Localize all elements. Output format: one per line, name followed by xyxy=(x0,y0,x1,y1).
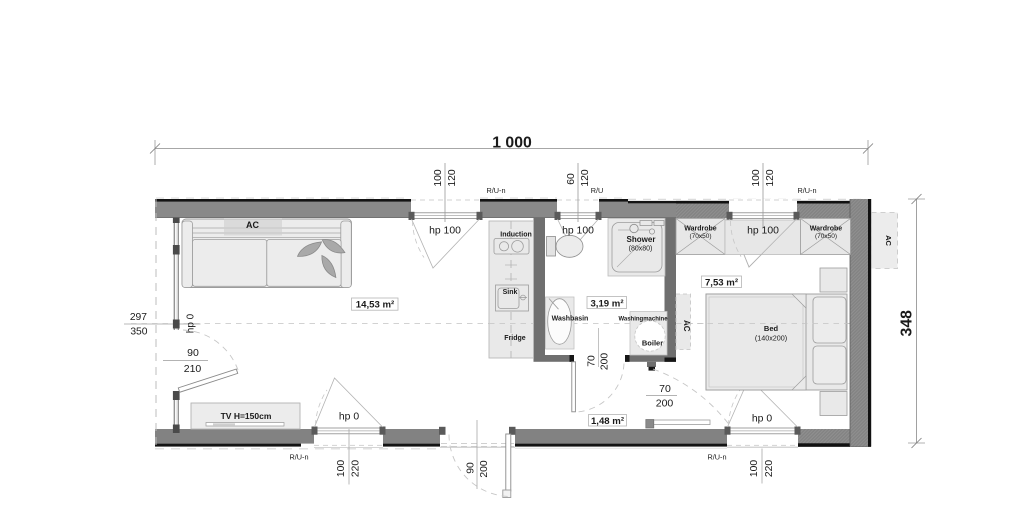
svg-text:350: 350 xyxy=(130,327,147,338)
svg-text:14,53 m²: 14,53 m² xyxy=(356,300,394,311)
svg-text:7,53 m²: 7,53 m² xyxy=(705,277,738,288)
svg-text:R/U-n: R/U-n xyxy=(289,453,308,462)
svg-text:Bed: Bed xyxy=(764,324,779,333)
svg-text:100: 100 xyxy=(336,460,347,477)
svg-text:1,48 m²: 1,48 m² xyxy=(591,416,624,427)
svg-text:TV H=150cm: TV H=150cm xyxy=(221,411,272,421)
svg-text:R/U: R/U xyxy=(591,186,604,195)
svg-text:200: 200 xyxy=(600,353,611,370)
svg-text:100: 100 xyxy=(749,460,760,477)
svg-text:70: 70 xyxy=(587,355,598,367)
svg-text:297: 297 xyxy=(130,312,147,323)
svg-text:Boiler: Boiler xyxy=(642,338,663,347)
svg-text:3,19 m²: 3,19 m² xyxy=(590,298,623,309)
svg-text:(140x200): (140x200) xyxy=(755,334,787,343)
svg-text:AC: AC xyxy=(884,235,893,246)
svg-text:Sink: Sink xyxy=(503,289,518,296)
svg-text:Wardrobe: Wardrobe xyxy=(810,226,843,233)
svg-text:hp 100: hp 100 xyxy=(747,226,779,237)
svg-text:(70x50): (70x50) xyxy=(689,233,711,240)
svg-text:R/U-n: R/U-n xyxy=(486,186,505,195)
svg-text:90: 90 xyxy=(466,462,477,474)
svg-text:Washbasin: Washbasin xyxy=(552,316,589,323)
svg-text:Shower: Shower xyxy=(627,235,656,244)
svg-text:AC: AC xyxy=(682,320,691,332)
svg-text:hp 0: hp 0 xyxy=(186,313,197,333)
svg-text:AC: AC xyxy=(246,220,259,230)
svg-text:120: 120 xyxy=(765,169,776,186)
svg-text:(80x80): (80x80) xyxy=(629,246,653,253)
svg-text:210: 210 xyxy=(184,363,202,375)
svg-text:120: 120 xyxy=(580,169,591,186)
svg-text:1 000: 1 000 xyxy=(492,134,532,151)
svg-text:220: 220 xyxy=(764,460,775,477)
svg-text:90: 90 xyxy=(187,347,199,359)
svg-text:348: 348 xyxy=(899,310,916,337)
svg-text:100: 100 xyxy=(433,169,444,186)
svg-text:200: 200 xyxy=(479,460,490,477)
svg-text:R/U-n: R/U-n xyxy=(707,453,726,462)
svg-text:Washingmachine: Washingmachine xyxy=(618,317,668,323)
svg-text:hp 100: hp 100 xyxy=(429,226,461,237)
svg-text:R/U-n: R/U-n xyxy=(797,186,816,195)
svg-text:120: 120 xyxy=(447,169,458,186)
svg-text:Wardrobe: Wardrobe xyxy=(684,226,717,233)
svg-text:Fridge: Fridge xyxy=(504,335,525,342)
svg-text:60: 60 xyxy=(566,173,577,185)
svg-text:220: 220 xyxy=(351,460,362,477)
svg-text:hp 100: hp 100 xyxy=(562,226,594,237)
svg-text:hp 0: hp 0 xyxy=(339,412,359,423)
svg-text:70: 70 xyxy=(659,383,671,395)
svg-text:hp 0: hp 0 xyxy=(752,414,772,425)
svg-text:(70x50): (70x50) xyxy=(815,233,837,240)
svg-text:100: 100 xyxy=(751,169,762,186)
svg-text:Induction: Induction xyxy=(500,231,532,238)
svg-text:200: 200 xyxy=(656,398,674,410)
